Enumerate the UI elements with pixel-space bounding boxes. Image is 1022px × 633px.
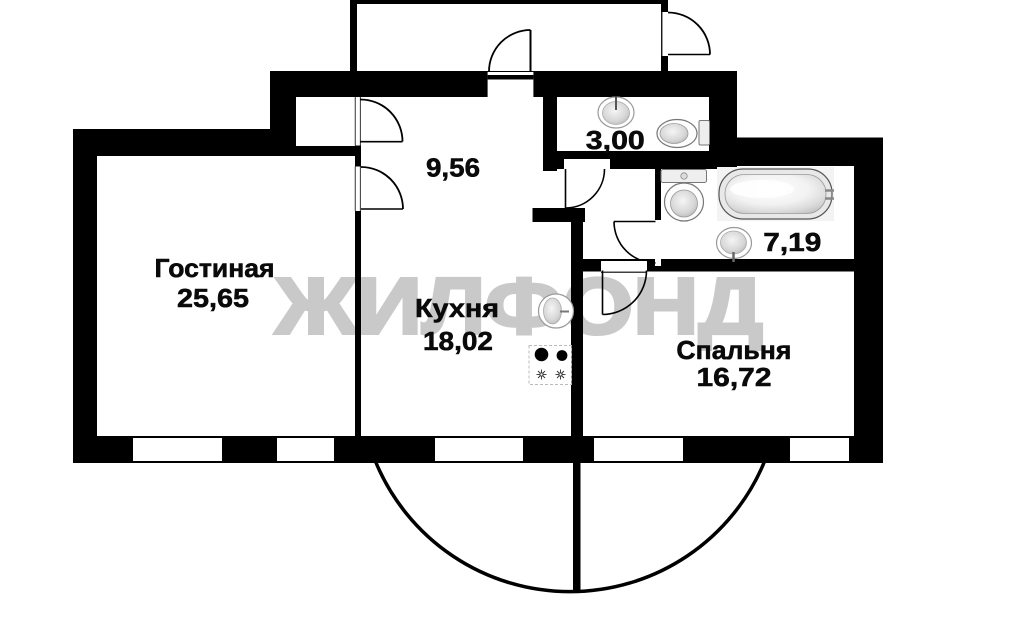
svg-text:16,72: 16,72 — [697, 362, 772, 392]
svg-text:3,00: 3,00 — [586, 125, 645, 155]
svg-text:Гостиная: Гостиная — [155, 253, 275, 283]
svg-text:7,19: 7,19 — [763, 227, 821, 257]
svg-text:Кухня: Кухня — [415, 293, 499, 323]
svg-text:18,02: 18,02 — [423, 326, 493, 356]
svg-text:25,65: 25,65 — [177, 283, 249, 313]
svg-text:Спальня: Спальня — [676, 335, 791, 365]
svg-text:9,56: 9,56 — [426, 153, 480, 183]
